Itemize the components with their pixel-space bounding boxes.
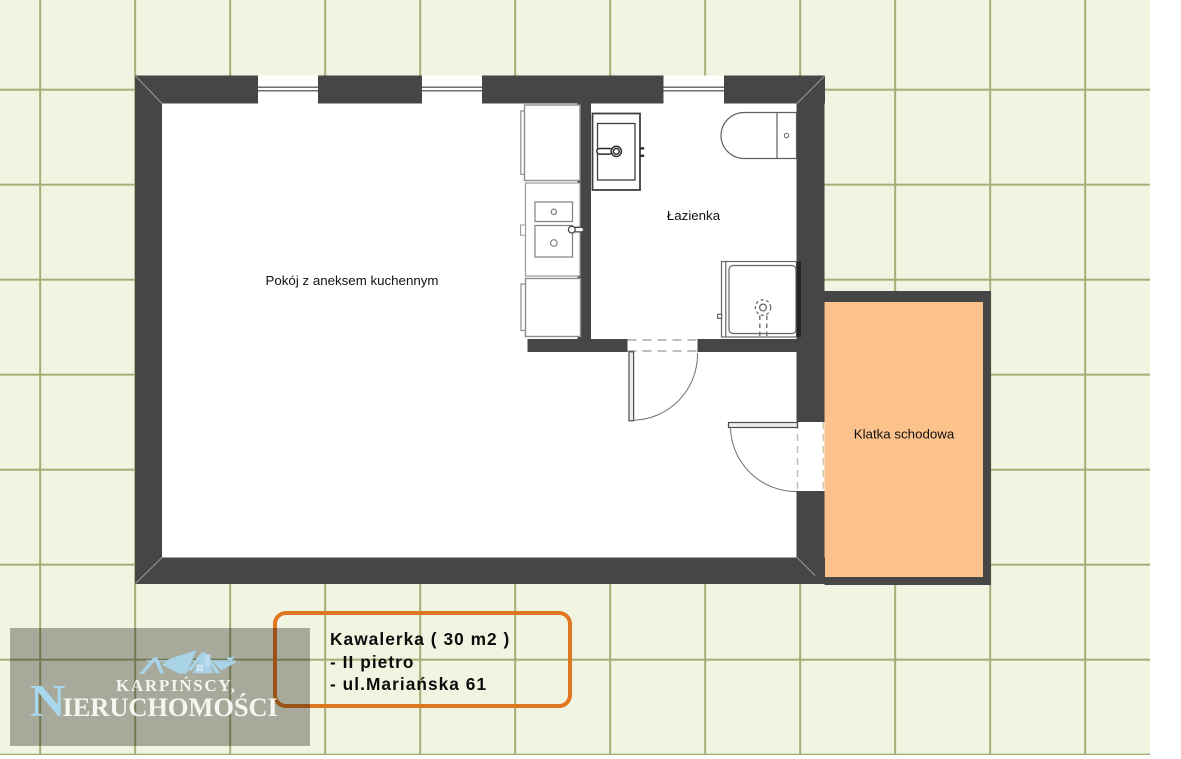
svg-text:Pokój z aneksem kuchennym: Pokój z aneksem kuchennym xyxy=(266,273,439,288)
svg-text:Łazienka: Łazienka xyxy=(667,208,721,223)
svg-text:Klatka schodowa: Klatka schodowa xyxy=(854,426,955,441)
